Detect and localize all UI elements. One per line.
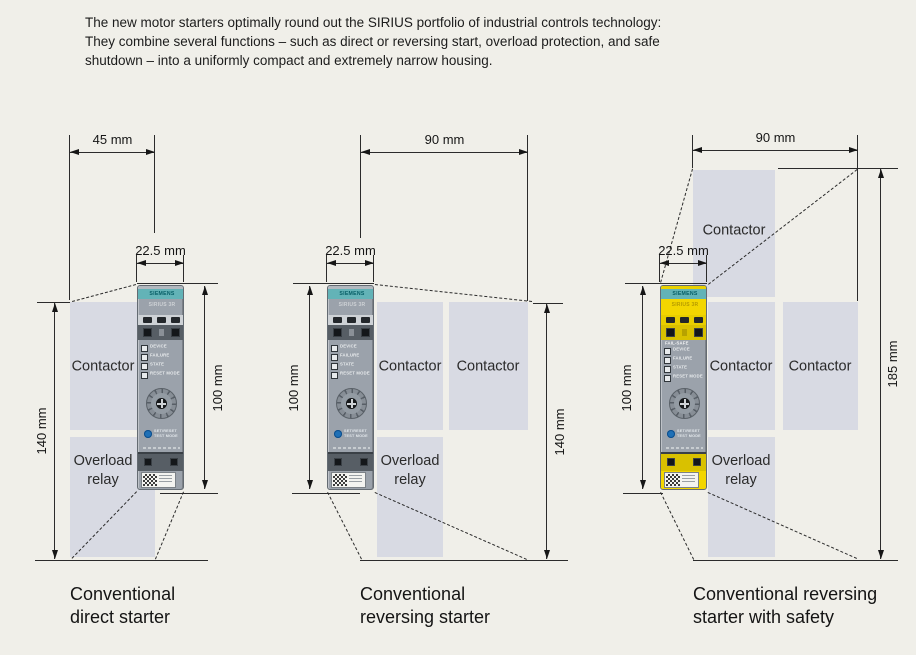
terminal-screw: [666, 328, 675, 337]
terminal-screw-band: [661, 325, 707, 340]
status-led-label: DEVICE: [673, 347, 707, 352]
extension-line: [857, 135, 858, 301]
terminal-slot: [666, 317, 675, 323]
overload-relay-box-label: Overload relay: [712, 452, 771, 490]
extension-line: [693, 560, 898, 561]
terminal-screw: [693, 458, 701, 466]
dimension-arrow: [660, 260, 669, 266]
dimension-arrow: [849, 147, 858, 153]
siemens-logo: SIEMENS: [661, 289, 707, 299]
dashed-projection-line: [660, 492, 694, 559]
terminal-slot-band: [661, 315, 707, 325]
terminal-notch: [682, 329, 687, 336]
failsafe-label: FAIL-SAFE: [665, 341, 707, 346]
dimension-line: [693, 150, 858, 151]
status-led: [665, 376, 670, 381]
status-led: [665, 367, 670, 372]
device-bottom-lip: [661, 489, 707, 490]
test-mode-label: TEST MODE: [677, 434, 707, 438]
terminal-slot: [680, 317, 689, 323]
siemens-logo-text: SIEMENS: [660, 291, 707, 297]
diagram-caption: Conventional reversing starter with safe…: [693, 583, 916, 629]
contactor-box-label: Contactor: [789, 358, 852, 377]
terminal-screw: [694, 328, 703, 337]
dimension-line: [880, 169, 881, 559]
contactor-box-label: Contactor: [703, 222, 766, 241]
dimension-label: 185 mm: [885, 329, 901, 399]
dimension-label: 22.5 mm: [639, 243, 729, 258]
qr-code: [666, 474, 680, 486]
terminal-slot: [694, 317, 703, 323]
status-led-label: FAILURE: [673, 356, 707, 361]
dimension-arrow: [640, 286, 646, 295]
contactor-box-label: Contactor: [710, 358, 773, 377]
status-led: [665, 349, 670, 354]
dimension-arrow: [698, 260, 707, 266]
dimension-arrow: [640, 480, 646, 489]
reset-button: [667, 430, 675, 438]
device-product-text: SIRIUS 3R: [660, 302, 707, 308]
status-led: [665, 358, 670, 363]
terminal-screw: [667, 458, 675, 466]
product-label: [665, 473, 698, 487]
dimension-arrow: [878, 550, 884, 559]
label-text-lines: [682, 475, 695, 484]
extension-line: [625, 283, 707, 284]
dimension-arrow: [693, 147, 702, 153]
motor-starter-device-safety: SIEMENSSIRIUS 3RFAIL-SAFEDEVICEFAILUREST…: [660, 285, 707, 490]
dimension-label: 100 mm: [619, 353, 635, 423]
figure-canvas: The new motor starters optimally round o…: [0, 0, 916, 655]
status-led-label: RESET MODE: [673, 374, 707, 379]
bottom-terminal-band: [661, 452, 707, 471]
micro-text-strip: [666, 447, 703, 449]
dial-slot-horizontal: [680, 403, 689, 405]
extension-line: [623, 493, 663, 494]
reset-label: SET/RESET: [677, 429, 707, 433]
dimension-line: [642, 286, 643, 489]
dimension-label: 90 mm: [731, 130, 821, 145]
dashed-projection-line: [660, 169, 693, 283]
rotary-dial-knob: [679, 398, 690, 409]
diagram-reversing-starter-with-safety: ContactorContactorContactorOverload rela…: [0, 0, 916, 655]
status-led-label: STATE: [673, 365, 707, 370]
dimension-arrow: [878, 169, 884, 178]
